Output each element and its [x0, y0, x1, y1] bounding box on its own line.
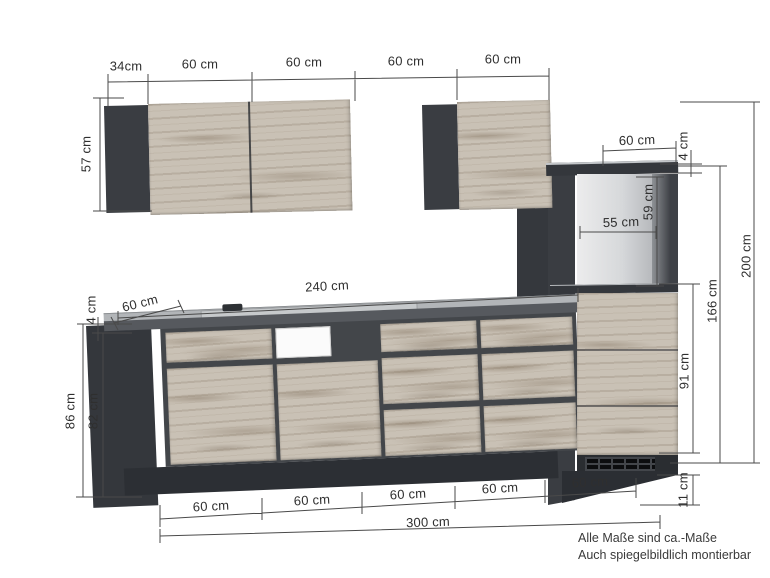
base-unit1-door [167, 365, 277, 465]
base-unit3-drawer-mid [382, 354, 480, 404]
dim-top-60-2: 60 cm [286, 55, 322, 70]
base-unit3-drawer-top [380, 320, 477, 352]
dim-tall-top-thickness: 4 cm [676, 132, 691, 161]
dim-tall-front-height: 91 cm [677, 353, 692, 389]
base-unit4-drawer-top [480, 316, 573, 348]
vent-grille [585, 457, 655, 471]
dim-base-total-height: 86 cm [63, 393, 78, 429]
tall-front-seam-1 [577, 349, 678, 351]
base-unit1-drawer-front [165, 329, 272, 363]
dim-top-60-1: 60 cm [182, 57, 218, 72]
dim-top-60-4: 60 cm [485, 52, 521, 67]
measurement-note: Alle Maße sind ca.-Maße Auch spiegelbild… [578, 530, 751, 564]
wall-cabinet-b-door [457, 100, 552, 210]
oven-niche-right-wall [652, 174, 678, 285]
dim-tall-body-height: 166 cm [705, 279, 720, 323]
dim-top-60-3: 60 cm [388, 54, 424, 69]
dim-worktop-length: 240 cm [305, 277, 350, 294]
dim-wall-cabinet-height: 57 cm [79, 136, 94, 172]
base-unit4-drawer-bottom [484, 402, 578, 452]
wall-cabinet-a-doors [148, 99, 352, 215]
dim-total-height: 200 cm [739, 234, 754, 278]
dim-total-width: 300 cm [406, 514, 450, 531]
base-unit3-drawer-bottom [384, 406, 482, 456]
wall-cabinet-a-side-panel [104, 105, 150, 213]
measurement-note-line1: Alle Maße sind ca.-Maße [578, 530, 751, 547]
dim-bottom-60-2: 60 cm [293, 492, 330, 509]
dim-tall-top-width: 60 cm [619, 132, 656, 148]
base-unit4-drawer-mid [481, 350, 575, 400]
dim-tall-plinth-height: 11 cm [676, 472, 691, 507]
dim-worktop-thickness: 4 cm [84, 296, 99, 325]
dim-bottom-60-1: 60 cm [192, 498, 229, 515]
dim-niche-height: 59 cm [641, 184, 656, 220]
dim-side-panel-depth: 34cm [110, 59, 143, 74]
faucet [222, 304, 242, 312]
dim-niche-width: 55 cm [603, 214, 640, 230]
tall-cabinet-lower-front [577, 293, 678, 455]
dim-bottom-60-5: 60 cm [571, 474, 608, 491]
dim-bottom-60-4: 60 cm [481, 480, 518, 497]
dim-base-body-height: 82 cm [86, 393, 101, 429]
base-unit2-door [277, 360, 382, 460]
tall-front-seam-2 [577, 405, 678, 407]
wall-cabinet-b-side-panel [422, 104, 459, 210]
kitchen-dimension-diagram: 34cm 60 cm 60 cm 60 cm 60 cm 57 cm 240 c… [0, 0, 770, 578]
base-unit2-appliance-front [275, 326, 331, 358]
dim-bottom-60-3: 60 cm [389, 486, 426, 503]
wall-cabinet-a-door-seam [248, 102, 253, 213]
measurement-note-line2: Auch spiegelbildlich montierbar [578, 547, 751, 564]
